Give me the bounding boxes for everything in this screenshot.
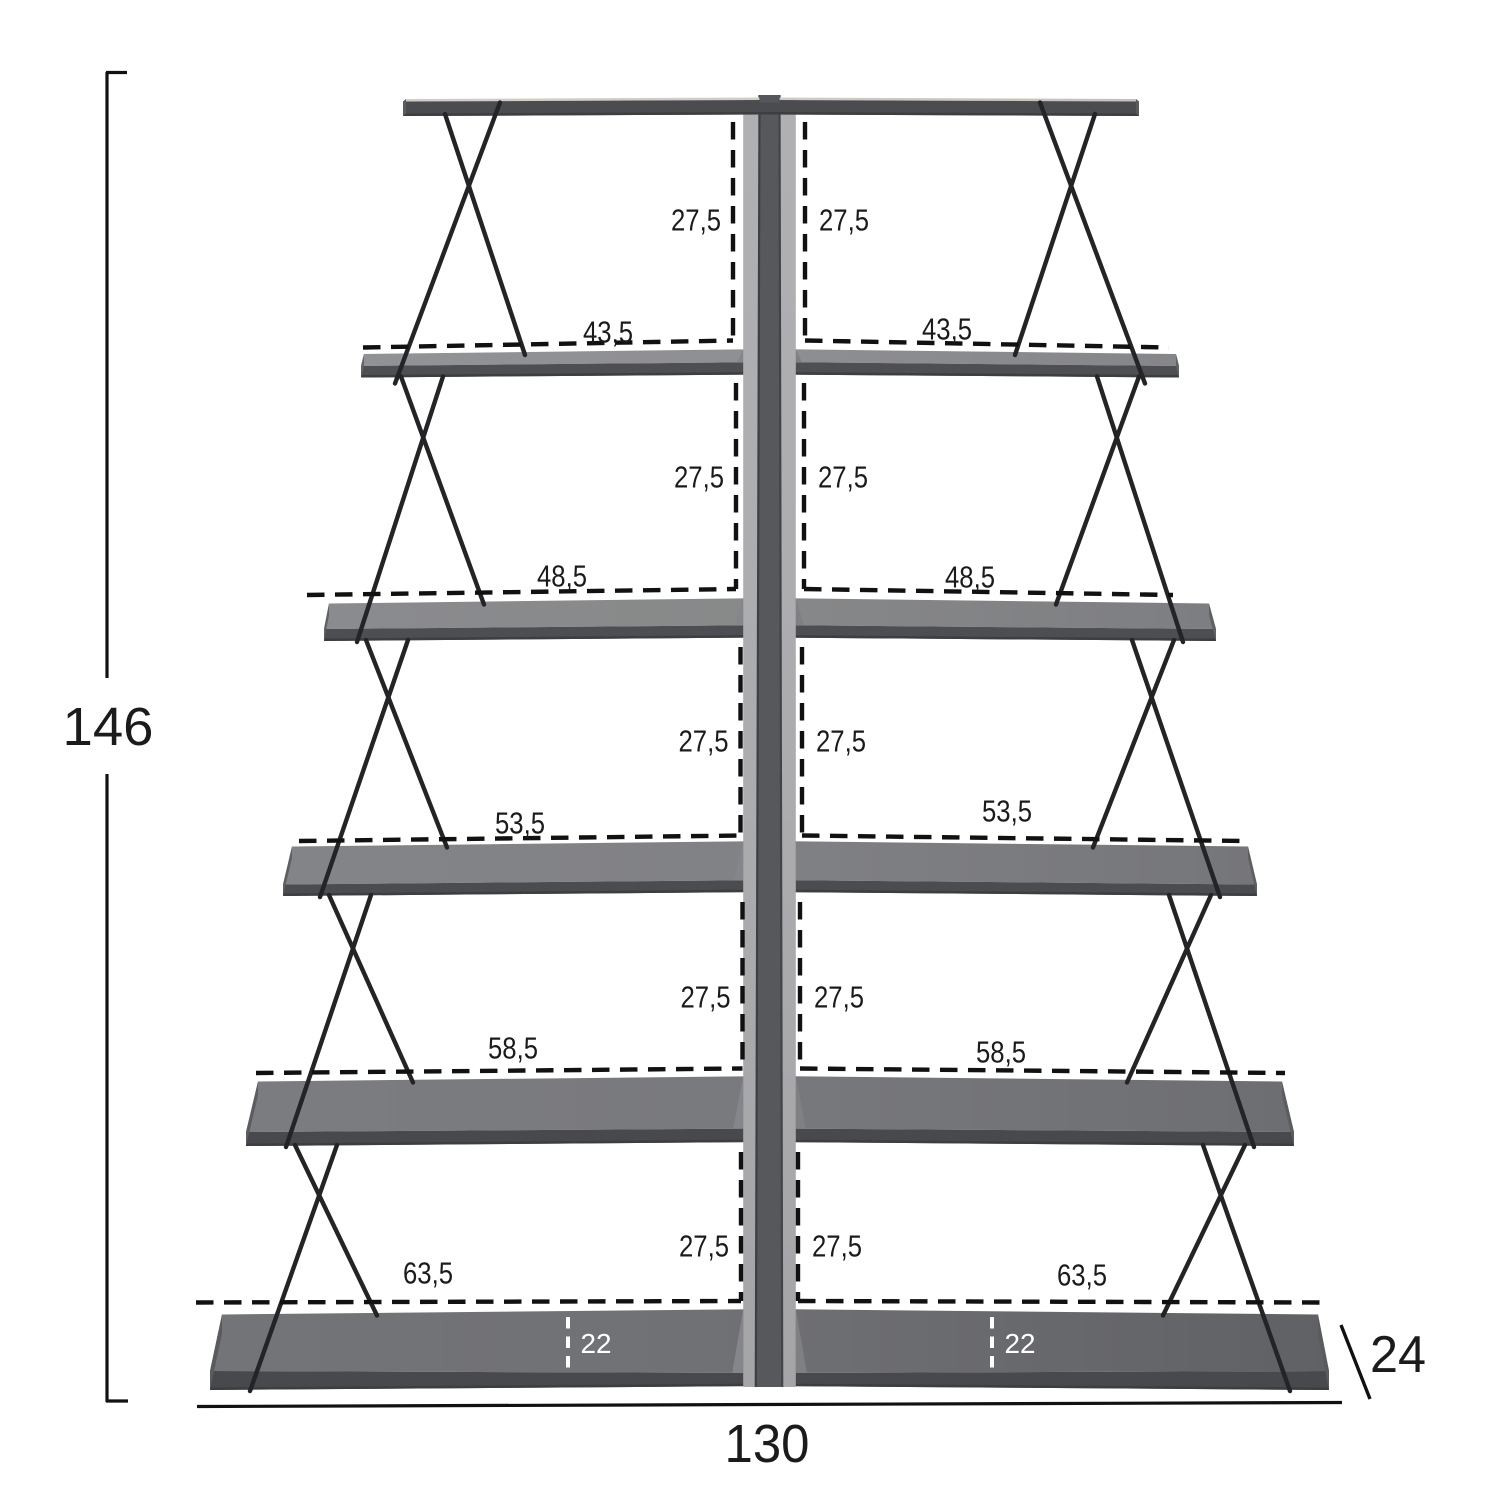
svg-text:27,5: 27,5 bbox=[674, 461, 724, 495]
svg-text:24: 24 bbox=[1370, 1326, 1426, 1384]
svg-text:22: 22 bbox=[1005, 1328, 1036, 1359]
svg-text:27,5: 27,5 bbox=[679, 1230, 729, 1264]
svg-text:27,5: 27,5 bbox=[679, 725, 729, 759]
svg-text:27,5: 27,5 bbox=[671, 204, 721, 238]
svg-text:27,5: 27,5 bbox=[812, 1230, 862, 1264]
svg-text:27,5: 27,5 bbox=[816, 725, 866, 759]
svg-text:53,5: 53,5 bbox=[982, 795, 1032, 829]
svg-text:27,5: 27,5 bbox=[681, 981, 731, 1015]
svg-text:22: 22 bbox=[581, 1328, 612, 1359]
svg-text:146: 146 bbox=[63, 697, 154, 757]
svg-text:27,5: 27,5 bbox=[818, 461, 868, 495]
svg-text:27,5: 27,5 bbox=[819, 204, 869, 238]
svg-text:63,5: 63,5 bbox=[1057, 1259, 1107, 1293]
svg-text:53,5: 53,5 bbox=[495, 807, 545, 841]
svg-text:48,5: 48,5 bbox=[945, 561, 995, 595]
svg-text:43,5: 43,5 bbox=[922, 313, 972, 347]
svg-text:27,5: 27,5 bbox=[814, 981, 864, 1015]
svg-text:48,5: 48,5 bbox=[537, 560, 587, 594]
svg-text:58,5: 58,5 bbox=[976, 1036, 1026, 1070]
svg-text:58,5: 58,5 bbox=[488, 1032, 538, 1066]
svg-text:130: 130 bbox=[725, 1414, 810, 1474]
svg-text:63,5: 63,5 bbox=[403, 1257, 453, 1291]
svg-text:43,5: 43,5 bbox=[583, 316, 633, 350]
